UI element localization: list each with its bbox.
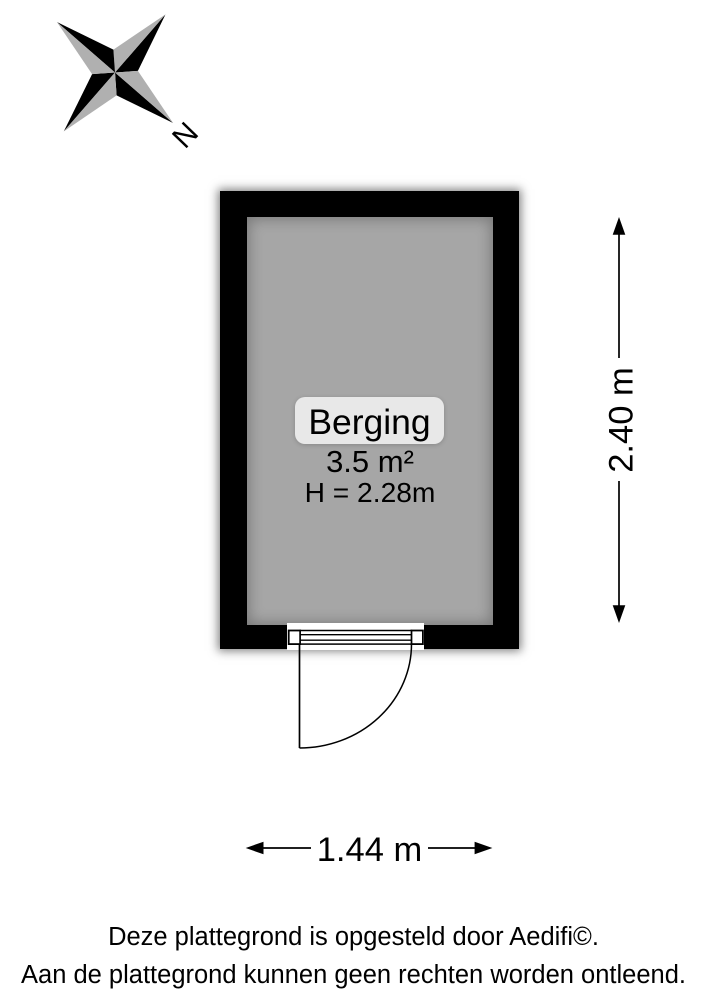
svg-text:2.40 m: 2.40 m	[603, 367, 641, 472]
svg-text:1.44 m: 1.44 m	[317, 831, 422, 869]
